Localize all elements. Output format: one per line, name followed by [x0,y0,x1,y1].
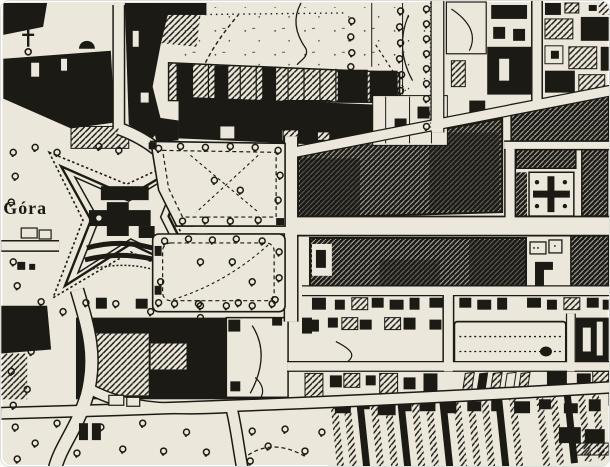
dark-block-south [310,236,609,292]
gora-label: Góra [3,198,47,218]
square-park [529,172,574,216]
historic-city-map: Góra [1,1,609,466]
long-hall-building [454,322,566,368]
park-square-south [153,234,285,312]
scanned-city-map-card: Góra [0,0,610,467]
